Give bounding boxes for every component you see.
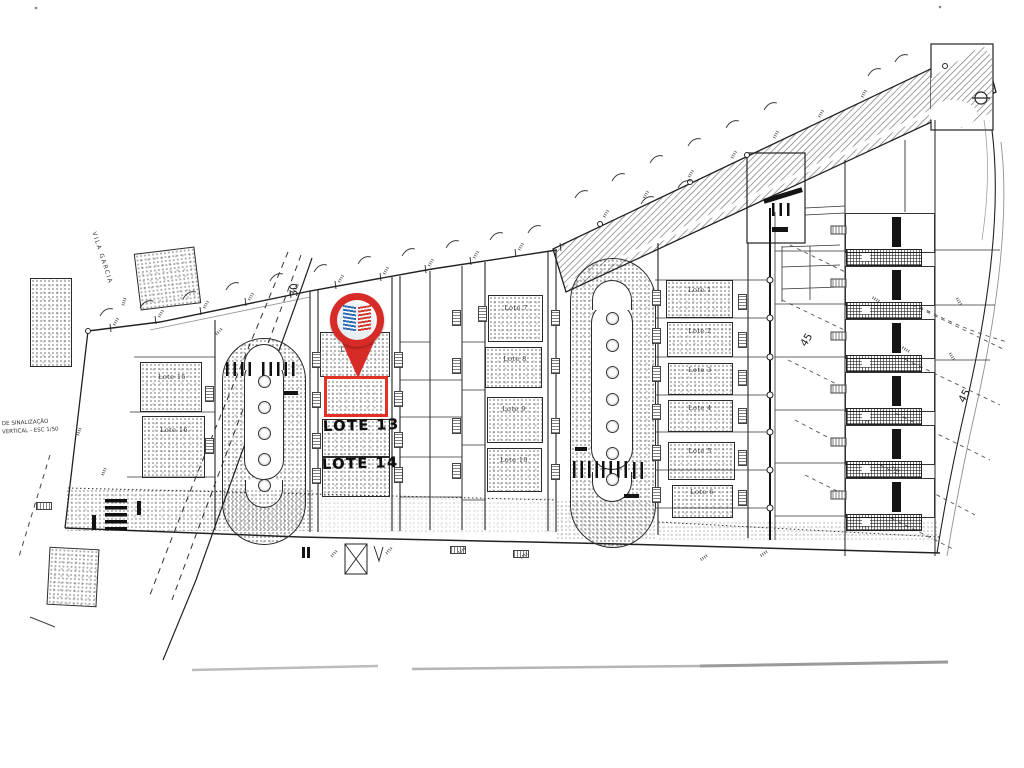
dimension-box [652, 445, 661, 461]
parking-bars [226, 362, 256, 376]
road-surface [316, 497, 554, 533]
parcel-southwest [47, 547, 100, 608]
dimension-box [452, 418, 461, 434]
lot-1-label: Lote 1 [668, 286, 732, 294]
dimension-box [312, 468, 321, 484]
road-bar [307, 547, 310, 558]
road-bar [137, 501, 141, 515]
lot-2-label: Lote 2 [668, 327, 732, 335]
dimension-box [312, 433, 321, 449]
tree-icon [606, 312, 619, 325]
parking-bars [633, 462, 647, 479]
dimension-box [394, 432, 403, 448]
house-wall-bar [892, 270, 901, 300]
house-footprint [846, 408, 922, 425]
dimension-box [205, 438, 214, 454]
house-notch [862, 306, 870, 314]
road-bar [92, 515, 96, 530]
house-notch [862, 518, 870, 526]
dimension-box [652, 404, 661, 420]
tree-icon [606, 473, 619, 486]
house-lot [845, 478, 935, 518]
road-bar [575, 447, 587, 451]
dimension-box [738, 490, 747, 506]
tree-icon [606, 393, 619, 406]
crosswalk [105, 499, 127, 532]
lot-8 [485, 347, 542, 388]
house-notch [862, 412, 870, 420]
dimension-30: 30 [289, 283, 301, 296]
lot-16-label: Lote 16 [148, 426, 200, 434]
tree-icon [258, 453, 271, 466]
road-bar [302, 547, 305, 558]
site-plan-scan: Lote 15 Lote 16 Lote 11 LOTE 13 LOTE 14 … [0, 0, 1024, 768]
dimension-box [652, 366, 661, 382]
dimension-box [831, 332, 847, 341]
lot-5-label: Lote 5 [668, 447, 732, 455]
dimension-box [831, 279, 847, 288]
lot-15 [140, 362, 202, 412]
dimension-box [652, 328, 661, 344]
dimension-box [831, 385, 847, 394]
house-lot [845, 266, 935, 306]
dimension-box [394, 391, 403, 407]
house-notch [862, 359, 870, 367]
dimension-box [551, 310, 560, 326]
lot-10-label: Lote 10 [487, 456, 541, 464]
house-lot [845, 319, 935, 359]
dimension-box [551, 464, 560, 480]
dimension-box [652, 290, 661, 306]
parcel-west [30, 278, 72, 367]
house-lot [845, 425, 935, 465]
house-lot [845, 213, 935, 253]
lot-15-label: Lote 15 [146, 373, 198, 381]
tree-icon [606, 420, 619, 433]
dimension-box [312, 352, 321, 368]
lot-6-label: Lote 6 [670, 488, 734, 496]
dimension-box [738, 370, 747, 386]
house-footprint [846, 355, 922, 372]
dimension-box [394, 352, 403, 368]
lot-9 [487, 397, 543, 443]
tree-icon [258, 375, 271, 388]
road-surface [556, 500, 656, 540]
tree-icon [258, 479, 271, 492]
dimension-box [205, 386, 214, 402]
tree-icon [606, 339, 619, 352]
lot-7 [488, 295, 543, 342]
lot-8-label: Lote 8 [488, 355, 542, 363]
house-wall-bar [892, 323, 901, 353]
dimension-box [738, 408, 747, 424]
loop-east-island [591, 302, 633, 470]
dimension-box [738, 294, 747, 310]
dimension-box [738, 332, 747, 348]
dimension-box [36, 502, 52, 510]
house-footprint [846, 461, 922, 478]
dimension-box [452, 310, 461, 326]
dimension-box [452, 358, 461, 374]
house-footprint [846, 302, 922, 319]
road-bar [624, 494, 639, 498]
parking-bars [772, 203, 794, 216]
tree-icon [606, 366, 619, 379]
dimension-box [652, 487, 661, 503]
house-notch [862, 465, 870, 473]
house-wall-bar [892, 429, 901, 459]
lot-7-label: Lote 7 [489, 304, 543, 312]
dimension-box [831, 491, 847, 500]
dimension-box [831, 438, 847, 447]
house-wall-bar [892, 376, 901, 406]
dimension-box [551, 418, 560, 434]
road-surface [66, 489, 314, 531]
logo-icon [358, 305, 371, 332]
lot-4-label: Lote 4 [668, 404, 732, 412]
parking-bars [262, 362, 298, 376]
dimension-box [738, 450, 747, 466]
lot-14-label: LOTE 14 [322, 455, 399, 473]
dimension-box [452, 463, 461, 479]
dimension-box [312, 392, 321, 408]
parking-bars [573, 461, 599, 478]
lot-13-label: LOTE 13 [323, 417, 400, 435]
house-wall-bar [892, 217, 901, 247]
house-footprint [846, 249, 922, 266]
road-bar [772, 227, 788, 232]
logo-icon [343, 305, 356, 332]
lot-10 [487, 448, 542, 492]
house-footprint [846, 514, 922, 531]
tree-icon [258, 401, 271, 414]
lot-3-label: Lote 3 [668, 366, 732, 374]
dimension-box [831, 226, 847, 235]
house-lot [845, 372, 935, 412]
parcel-north [134, 246, 201, 310]
tree-icon [258, 427, 271, 440]
house-notch [862, 253, 870, 261]
house-wall-bar [892, 482, 901, 512]
dimension-box [478, 306, 487, 322]
road-bar [284, 391, 298, 395]
lot-9-label: Lote 9 [487, 405, 541, 413]
dimension-box [551, 358, 560, 374]
location-pin [329, 292, 389, 384]
tree-icon [606, 447, 619, 460]
